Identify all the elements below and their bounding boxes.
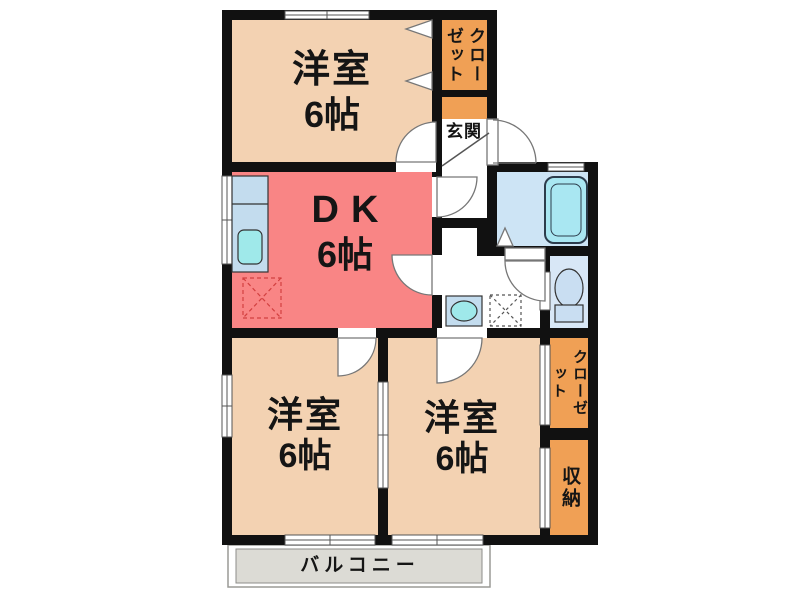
balcony-label: バルコニー <box>238 550 482 582</box>
storage-label: 収納 <box>549 448 589 528</box>
toilet-icon <box>555 269 583 322</box>
bedroom-right-label: 洋室 6帖 <box>382 388 542 488</box>
bedroom-left-label: 洋室 6帖 <box>225 385 385 485</box>
entrance-cabinet <box>442 97 487 119</box>
room-size: 6帖 <box>304 93 360 136</box>
wash-basin-icon <box>446 296 482 326</box>
hall-door-swing <box>437 177 477 217</box>
washing-machine-space-icon <box>490 295 521 326</box>
floor-plan: 洋室 6帖 クローゼット 玄関 DK 6帖 洋室 6帖 洋室 6帖 クローゼット… <box>0 0 800 600</box>
room-name: DK <box>300 188 391 234</box>
room-size: 6帖 <box>279 436 332 477</box>
bedroom-top-label: 洋室 6帖 <box>252 38 412 146</box>
room-name: 洋室 <box>267 393 343 436</box>
room-size: 6帖 <box>317 233 373 276</box>
closet-top-label: クローゼット <box>441 21 487 89</box>
closet-right-label: クローゼット <box>549 347 589 419</box>
dining-kitchen-label: DK 6帖 <box>265 183 425 281</box>
kitchen-sink-icon <box>232 176 268 272</box>
room-name: 洋室 <box>424 396 500 439</box>
room-name: 洋室 <box>292 48 372 94</box>
bathtub-icon <box>545 177 587 243</box>
front-door-swing <box>493 120 536 163</box>
bathroom-door-leaf <box>505 248 545 260</box>
entrance-label: 玄関 <box>439 120 489 144</box>
room-size: 6帖 <box>436 439 489 480</box>
